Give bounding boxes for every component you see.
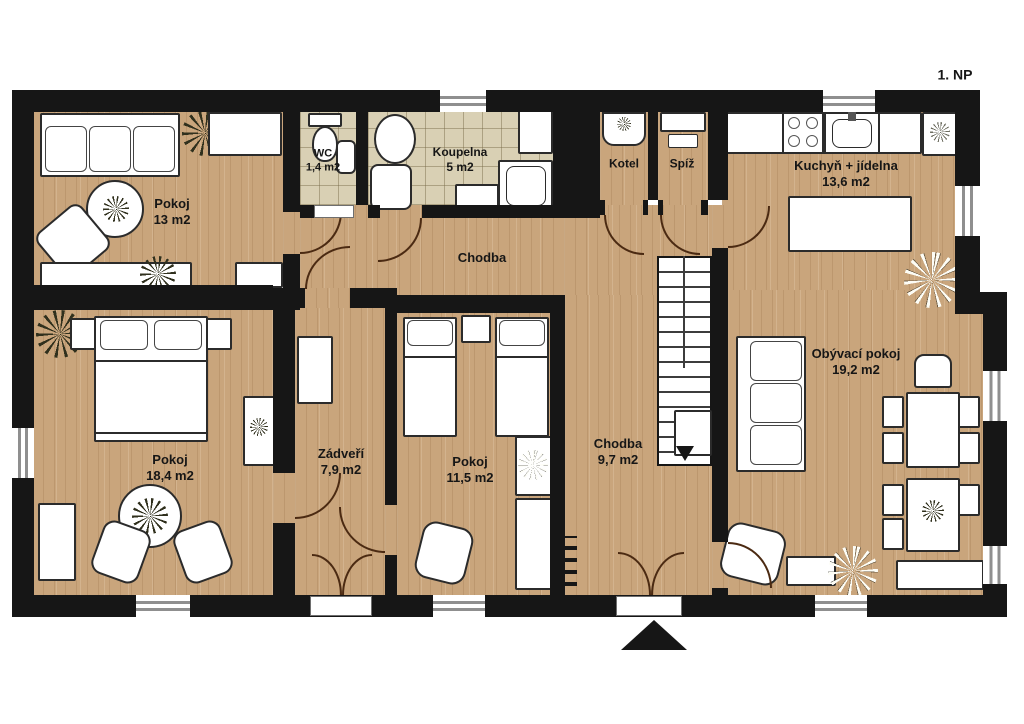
wall bbox=[273, 523, 295, 595]
room-name: Koupelna bbox=[433, 145, 488, 159]
burner bbox=[806, 135, 818, 147]
stair-rail bbox=[683, 256, 685, 368]
pillow bbox=[100, 320, 148, 350]
room-area: 19,2 m2 bbox=[812, 362, 901, 378]
window bbox=[983, 543, 1007, 587]
wall bbox=[385, 295, 565, 313]
boiler-valve-icon bbox=[617, 117, 631, 131]
wall bbox=[300, 205, 315, 218]
shelf bbox=[668, 134, 698, 148]
room-label-kotel: Kotel bbox=[609, 157, 639, 172]
room-name: WC bbox=[314, 147, 332, 159]
room-area: 11,5 m2 bbox=[447, 470, 494, 486]
cushion bbox=[45, 126, 87, 172]
tap-icon bbox=[848, 112, 856, 121]
wall bbox=[356, 112, 368, 205]
chair bbox=[958, 432, 980, 464]
floor-plan: 1. NP Pokoj 13 m2 WC 1,4 m2 Koupelna 5 m… bbox=[0, 0, 1024, 724]
room-name: Obývací pokoj bbox=[812, 346, 901, 361]
room-label-wc: WC 1,4 m2 bbox=[306, 147, 340, 175]
room-label-obyvaci: Obývací pokoj 19,2 m2 bbox=[812, 346, 901, 379]
wall bbox=[643, 200, 648, 215]
wall bbox=[648, 90, 658, 200]
room-area: 13,6 m2 bbox=[793, 174, 899, 190]
sink bbox=[374, 114, 416, 164]
room-name: Kotel bbox=[609, 157, 639, 171]
door-leaf bbox=[314, 205, 354, 218]
room-area: 9,7 m2 bbox=[594, 452, 642, 468]
window bbox=[820, 90, 878, 112]
blanket-line bbox=[403, 356, 457, 358]
window bbox=[12, 425, 34, 481]
room-area: 5 m2 bbox=[433, 160, 488, 175]
room-name: Pokoj bbox=[452, 454, 487, 469]
room-label-koupelna: Koupelna 5 m2 bbox=[433, 145, 488, 175]
wall bbox=[368, 205, 380, 218]
wall bbox=[422, 205, 553, 218]
radiator bbox=[565, 536, 577, 586]
nightstand bbox=[461, 315, 491, 343]
chair bbox=[958, 484, 980, 516]
door-gap bbox=[385, 505, 397, 555]
pillow bbox=[499, 320, 545, 346]
wall bbox=[12, 90, 34, 617]
cabinet bbox=[896, 560, 984, 590]
desk bbox=[208, 112, 282, 156]
door-gap bbox=[273, 473, 295, 523]
wall bbox=[385, 313, 397, 505]
wall bbox=[550, 295, 565, 595]
dining-table bbox=[906, 392, 960, 468]
cabinet bbox=[297, 336, 333, 404]
plant bbox=[904, 252, 960, 308]
pillow bbox=[407, 320, 453, 346]
cabinet bbox=[38, 503, 76, 581]
room-label-spiz: Spíž bbox=[670, 157, 695, 172]
washing-machine bbox=[370, 164, 412, 210]
burner bbox=[788, 135, 800, 147]
chair bbox=[882, 484, 904, 516]
window bbox=[983, 368, 1007, 424]
wall bbox=[283, 90, 300, 212]
room-area: 1,4 m2 bbox=[306, 161, 340, 175]
door-gap bbox=[305, 288, 350, 308]
snowflake-icon bbox=[930, 122, 950, 142]
burner bbox=[806, 117, 818, 129]
room-label-zadveri: Zádveří 7,9 m2 bbox=[318, 446, 364, 479]
wall bbox=[273, 288, 295, 473]
room-name: Pokoj bbox=[154, 196, 189, 211]
room-label-pokoj2: Pokoj 18,4 m2 bbox=[146, 452, 194, 485]
blanket-line bbox=[495, 356, 549, 358]
toilet bbox=[308, 113, 342, 127]
room-label-kuchyn: Kuchyň + jídelna 13,6 m2 bbox=[793, 158, 899, 191]
wall bbox=[712, 588, 728, 598]
room-area: 7,9 m2 bbox=[318, 462, 364, 478]
chair bbox=[882, 432, 904, 464]
chair bbox=[882, 396, 904, 428]
room-name: Spíž bbox=[670, 157, 695, 171]
cushion bbox=[750, 383, 802, 423]
room-name: Zádveří bbox=[318, 446, 364, 461]
cushion bbox=[750, 341, 802, 381]
nightstand bbox=[206, 318, 232, 350]
wall bbox=[600, 200, 605, 215]
room-name: Chodba bbox=[594, 436, 642, 451]
wall bbox=[712, 248, 728, 542]
counter bbox=[518, 110, 553, 154]
cushion bbox=[133, 126, 175, 172]
plant bbox=[103, 196, 129, 222]
plant bbox=[922, 500, 944, 522]
window bbox=[955, 183, 980, 239]
nightstand bbox=[70, 318, 96, 350]
entrance-arrow bbox=[621, 620, 687, 650]
plant bbox=[250, 418, 268, 436]
wall bbox=[385, 555, 397, 595]
window bbox=[812, 595, 870, 617]
chair bbox=[914, 354, 952, 388]
wall bbox=[708, 90, 728, 200]
door-leaf bbox=[616, 596, 682, 616]
stair-direction-arrow bbox=[676, 446, 694, 461]
wall bbox=[32, 285, 273, 310]
kitchen-sink-basin bbox=[832, 119, 872, 148]
floor-title: 1. NP bbox=[937, 66, 972, 84]
burner bbox=[788, 117, 800, 129]
door-gap bbox=[712, 205, 728, 248]
wall bbox=[553, 90, 600, 218]
room-label-pokoj3: Pokoj 11,5 m2 bbox=[447, 454, 494, 487]
pillow bbox=[154, 320, 202, 350]
plant bbox=[518, 450, 548, 480]
outside-mask bbox=[980, 84, 1024, 292]
room-area: 18,4 m2 bbox=[146, 468, 194, 484]
shower-tray bbox=[506, 166, 546, 206]
dining-table bbox=[788, 196, 912, 252]
room-name: Chodba bbox=[458, 250, 506, 265]
cabinet bbox=[515, 498, 553, 590]
room-label-chodba1: Chodba bbox=[458, 250, 506, 266]
cushion bbox=[89, 126, 131, 172]
room-name: Pokoj bbox=[152, 452, 187, 467]
chair bbox=[958, 396, 980, 428]
window bbox=[437, 90, 489, 112]
door-leaf bbox=[310, 596, 372, 616]
bed-footer bbox=[94, 432, 208, 442]
room-area: 13 m2 bbox=[154, 212, 191, 228]
blanket-line bbox=[94, 360, 208, 362]
wall bbox=[658, 200, 663, 215]
chair bbox=[882, 518, 904, 550]
shelf bbox=[660, 112, 706, 132]
door-gap bbox=[283, 212, 300, 254]
cushion bbox=[750, 425, 802, 465]
wall bbox=[701, 200, 708, 215]
room-label-chodba2: Chodba 9,7 m2 bbox=[594, 436, 642, 469]
room-label-pokoj1: Pokoj 13 m2 bbox=[154, 196, 191, 229]
window bbox=[133, 595, 193, 617]
window bbox=[430, 595, 488, 617]
room-name: Kuchyň + jídelna bbox=[794, 158, 898, 173]
plant bbox=[828, 546, 878, 596]
